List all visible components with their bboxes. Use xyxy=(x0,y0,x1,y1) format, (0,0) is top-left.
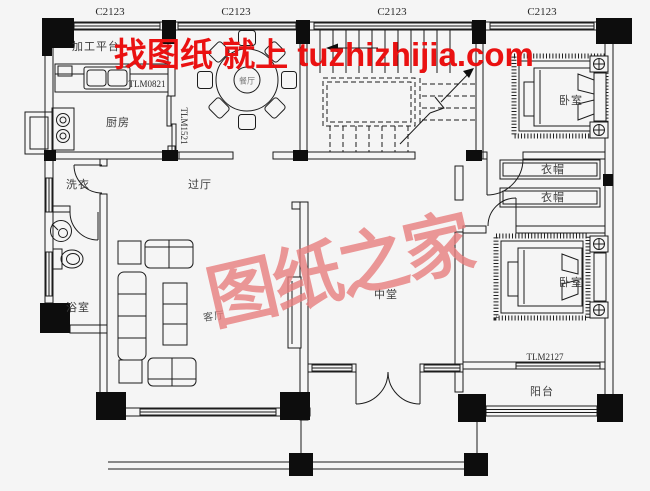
balcony xyxy=(486,406,597,416)
toilet xyxy=(53,249,83,269)
room-label-laundry: 洗衣 xyxy=(66,176,90,192)
room-label-dining: 餐厅 xyxy=(239,76,255,87)
window-code-4: C2123 xyxy=(527,6,556,18)
window-code-3: C2123 xyxy=(377,6,406,18)
wash-basin xyxy=(51,221,72,242)
room-label-bath: 浴室 xyxy=(66,299,90,315)
stove xyxy=(52,108,74,150)
floor-plan: 加工平台 厨房 餐厅 过厅 洗衣 浴室 客厅 中堂 卧室 卧室 衣帽 衣帽 阳台… xyxy=(0,0,650,491)
room-label-platform: 加工平台 xyxy=(72,38,120,54)
door-code-sliding: TLM1521 xyxy=(179,108,189,145)
room-label-cloak-lower: 衣帽 xyxy=(541,189,565,205)
room-label-balcony: 阳台 xyxy=(530,383,554,399)
window-code-1: C2123 xyxy=(95,6,124,18)
room-label-bedroom-top: 卧室 xyxy=(559,92,583,108)
door-code-balcony: TLM2127 xyxy=(527,352,564,362)
room-label-bedroom-bottom: 卧室 xyxy=(559,274,583,290)
room-label-hall: 过厅 xyxy=(188,176,212,192)
window-code-2: C2123 xyxy=(221,6,250,18)
watermark-headline: 找图纸 就上 tuzhizhijia.com xyxy=(114,28,534,76)
room-label-kitchen: 厨房 xyxy=(106,114,130,130)
bedroom-bottom-furniture xyxy=(496,236,608,318)
room-label-cloak-upper: 衣帽 xyxy=(541,161,565,177)
door-code-kitchen: TLM0821 xyxy=(129,79,166,89)
